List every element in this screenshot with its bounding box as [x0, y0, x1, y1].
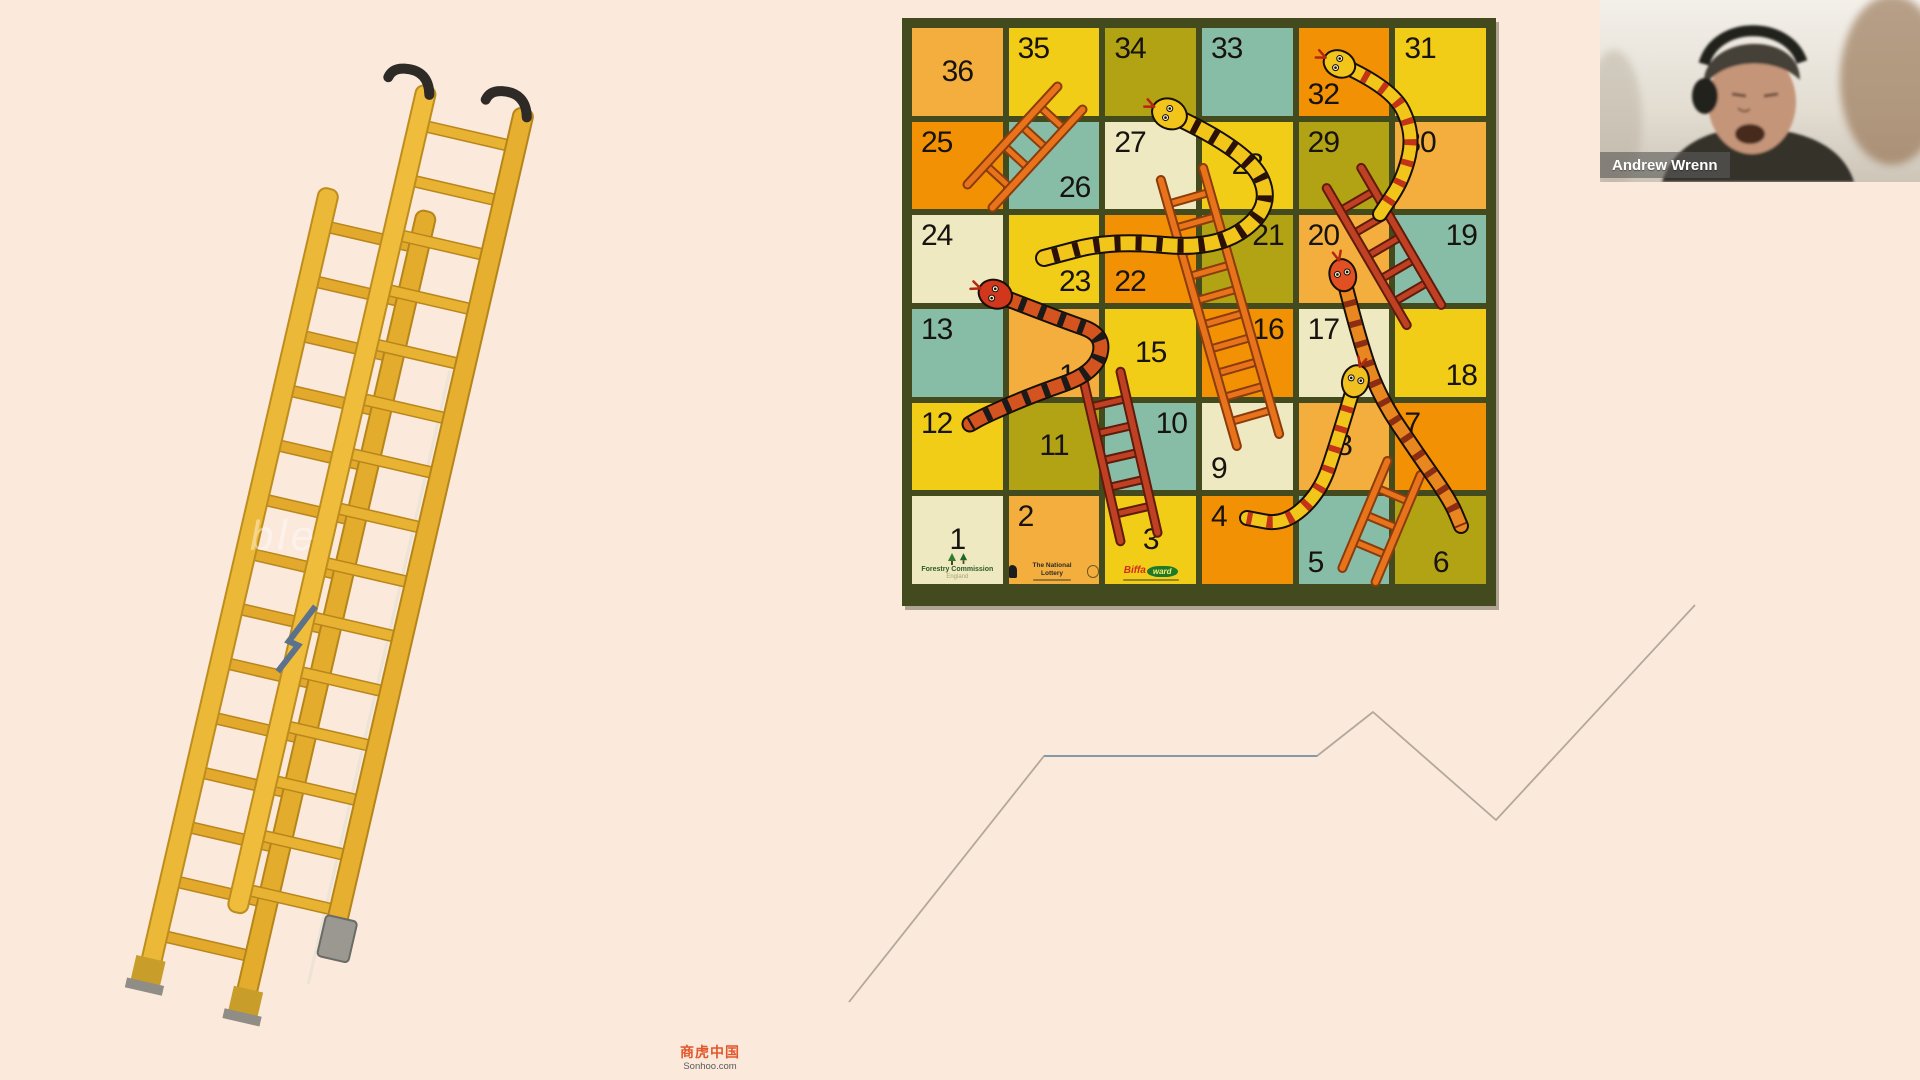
cell-number: 5: [1308, 548, 1324, 578]
headphones-earcup: [1692, 78, 1718, 114]
board-cell-18: 18: [1395, 309, 1486, 397]
board-cell-7: 7: [1395, 403, 1486, 491]
mouth: [1735, 124, 1765, 144]
cell-number: 7: [1404, 409, 1420, 439]
board-cell-25: 25: [912, 122, 1003, 210]
cell-number: 31: [1404, 34, 1435, 64]
sponsor-tagline: [1033, 579, 1071, 581]
board-cell-20: 20: [1299, 215, 1390, 303]
cell-number: 12: [921, 409, 952, 439]
extension-ladder-image: [90, 48, 570, 1040]
sponsor-roundel-icon: [1087, 565, 1100, 578]
cell-number: 19: [1446, 221, 1477, 251]
board-cell-15: 15: [1105, 309, 1196, 397]
cell-number: 30: [1404, 128, 1435, 158]
ladder-front-section: [185, 65, 547, 992]
cell-number: 15: [1135, 338, 1166, 368]
board-cell-26: 26: [1009, 122, 1100, 210]
board-cell-9: 9: [1202, 403, 1293, 491]
board-cell-10: 10: [1105, 403, 1196, 491]
snakes-and-ladders-board: 3635343332312526272829302423222120191314…: [902, 18, 1496, 606]
board-cell-22: 22: [1105, 215, 1196, 303]
board-cell-27: 27: [1105, 122, 1196, 210]
board-cell-12: 12: [912, 403, 1003, 491]
cell-number: 28: [1232, 150, 1263, 180]
cell-number: 10: [1156, 409, 1187, 439]
board-cell-14: 14: [1009, 309, 1100, 397]
board-cell-6: 6: [1395, 496, 1486, 584]
ladder-hook: [386, 65, 433, 95]
cell-number: 24: [921, 221, 952, 251]
cell-number: 11: [1039, 431, 1068, 461]
cell-number: 32: [1308, 80, 1339, 110]
board-cell-2: 2The National Lottery: [1009, 496, 1100, 584]
participant-name-tag: Andrew Wrenn: [1600, 152, 1730, 178]
board-cell-4: 4: [1202, 496, 1293, 584]
board-cell-36: 36: [912, 28, 1003, 116]
board-cell-11: 11: [1009, 403, 1100, 491]
board-cell-24: 24: [912, 215, 1003, 303]
board-grid: 3635343332312526272829302423222120191314…: [912, 28, 1486, 584]
cell-number: 8: [1336, 431, 1352, 461]
board-cell-29: 29: [1299, 122, 1390, 210]
board-cell-30: 30: [1395, 122, 1486, 210]
cell-number: 29: [1308, 128, 1339, 158]
cell-number: 9: [1211, 454, 1227, 484]
board-cell-17: 17: [1299, 309, 1390, 397]
site-watermark: 商虎中国 Sonhoo.com: [620, 1044, 800, 1072]
board-cell-23: 23: [1009, 215, 1100, 303]
cell-number: 18: [1446, 361, 1477, 391]
cell-number: 25: [921, 128, 952, 158]
shared-screen: ble 363534333231252627282930242322212019…: [0, 0, 1920, 1080]
sponsor-biffaward: Biffaward: [1105, 565, 1196, 581]
cell-number: 14: [1059, 361, 1090, 391]
board-cell-19: 19: [1395, 215, 1486, 303]
board-cell-32: 32: [1299, 28, 1390, 116]
board-cell-31: 31: [1395, 28, 1486, 116]
cell-number: 17: [1308, 315, 1339, 345]
crossed-fingers-icon: [1009, 565, 1018, 578]
site-watermark-cn: 商虎中国: [620, 1044, 800, 1061]
cell-number: 2: [1018, 502, 1034, 532]
board-cell-8: 8: [1299, 403, 1390, 491]
board-cell-13: 13: [912, 309, 1003, 397]
sponsor-forestry-commission: Forestry CommissionEngland: [912, 553, 1003, 581]
board-cell-16: 16: [1202, 309, 1293, 397]
webcam-video-tile[interactable]: Andrew Wrenn: [1600, 0, 1920, 182]
sponsor-national-lottery: The National Lottery: [1009, 562, 1100, 581]
ladder-hook: [484, 87, 531, 117]
cell-number: 35: [1018, 34, 1049, 64]
cell-number: 13: [921, 315, 952, 345]
cell-number: 36: [942, 57, 973, 87]
cell-number: 34: [1114, 34, 1145, 64]
board-cell-3: 3Biffaward: [1105, 496, 1196, 584]
tree-icons: [912, 553, 1003, 565]
cell-number: 27: [1114, 128, 1145, 158]
cell-number: 26: [1059, 173, 1090, 203]
board-cell-21: 21: [1202, 215, 1293, 303]
cell-number: 20: [1308, 221, 1339, 251]
board-cell-34: 34: [1105, 28, 1196, 116]
board-cell-35: 35: [1009, 28, 1100, 116]
sponsor-tagline: [1123, 579, 1179, 581]
cell-number: 21: [1252, 221, 1283, 251]
cell-number: 33: [1211, 34, 1242, 64]
cell-number: 22: [1114, 267, 1145, 297]
cell-number: 6: [1433, 548, 1449, 578]
site-watermark-url: Sonhoo.com: [620, 1061, 800, 1072]
cell-number: 23: [1059, 267, 1090, 297]
cell-number: 4: [1211, 502, 1227, 532]
participant-name: Andrew Wrenn: [1612, 157, 1718, 174]
board-cell-33: 33: [1202, 28, 1293, 116]
board-cell-5: 5: [1299, 496, 1390, 584]
board-cell-28: 28: [1202, 122, 1293, 210]
cell-number: 3: [1143, 525, 1159, 555]
cell-number: 1: [949, 525, 965, 555]
cell-number: 16: [1252, 315, 1283, 345]
board-cell-1: 1Forestry CommissionEngland: [912, 496, 1003, 584]
